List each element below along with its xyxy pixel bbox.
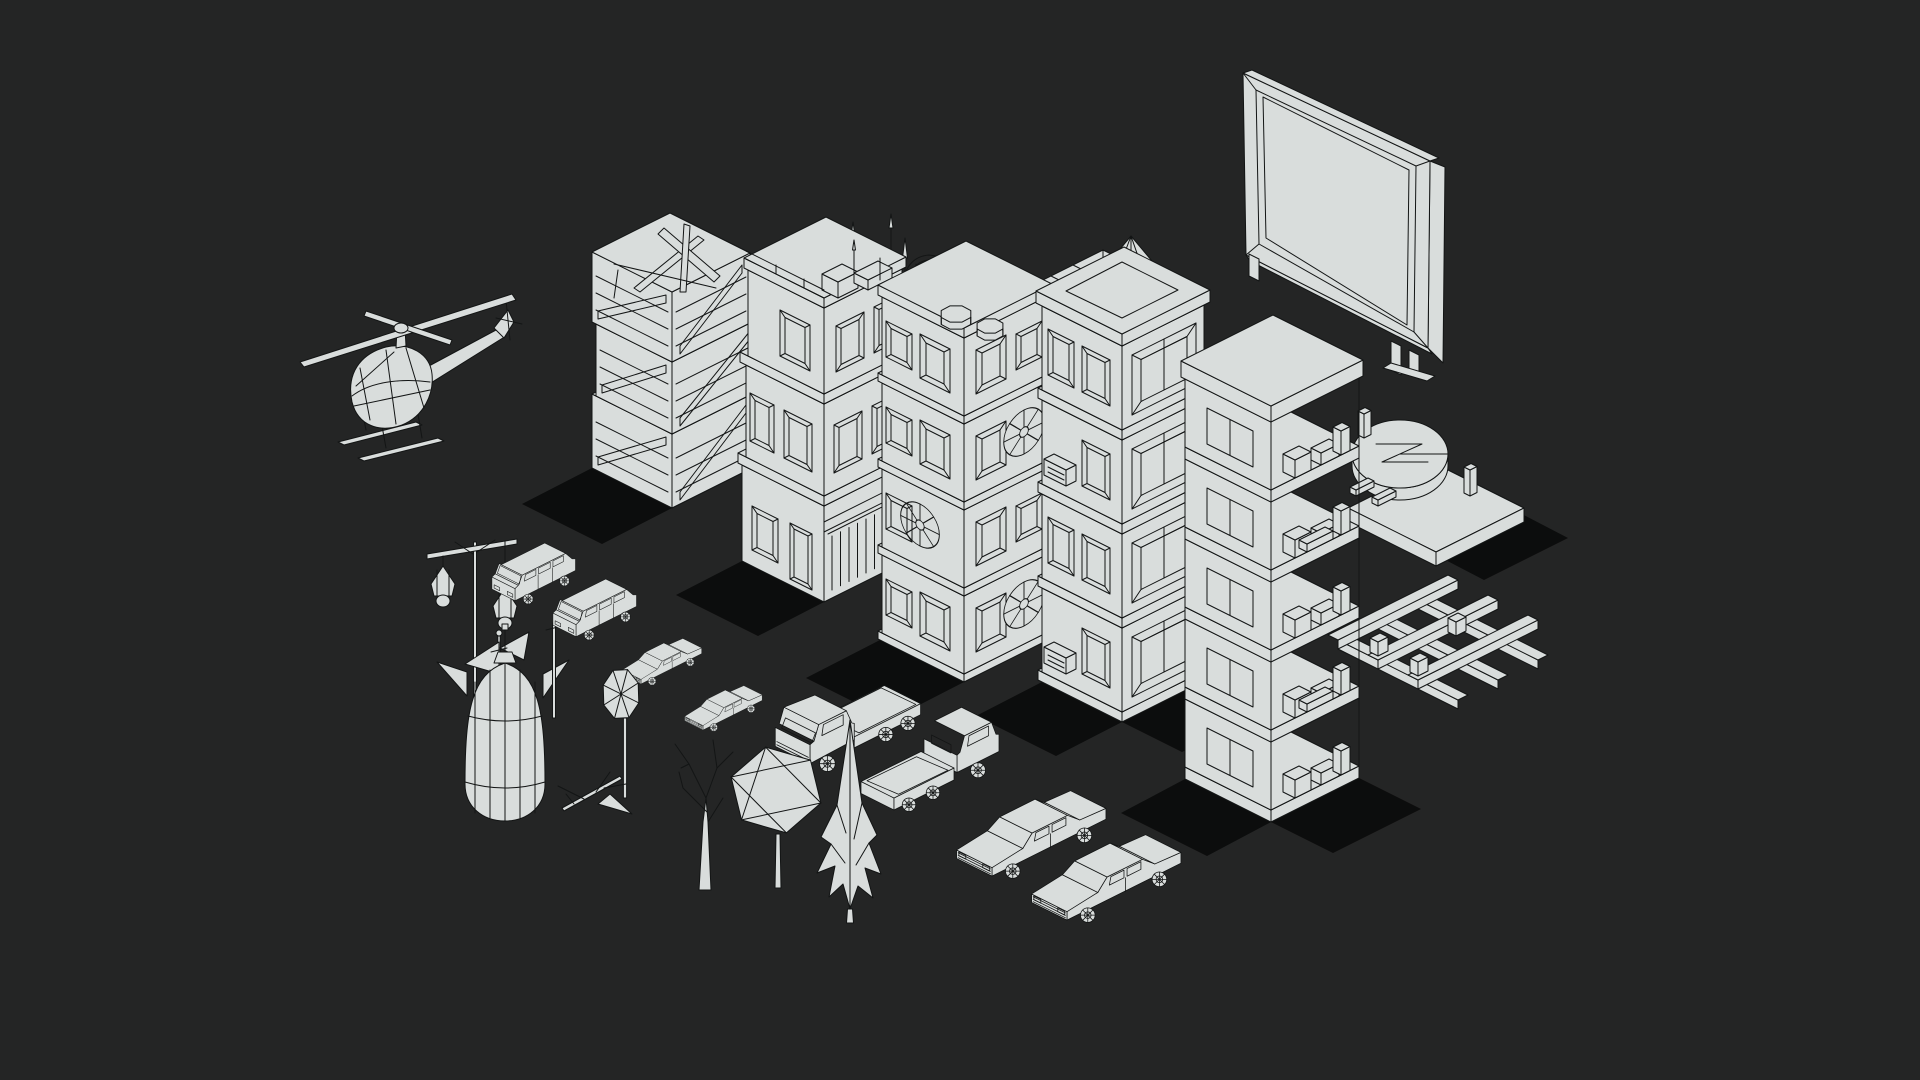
scene-canvas	[0, 0, 1920, 1080]
render-viewport	[0, 0, 1920, 1080]
